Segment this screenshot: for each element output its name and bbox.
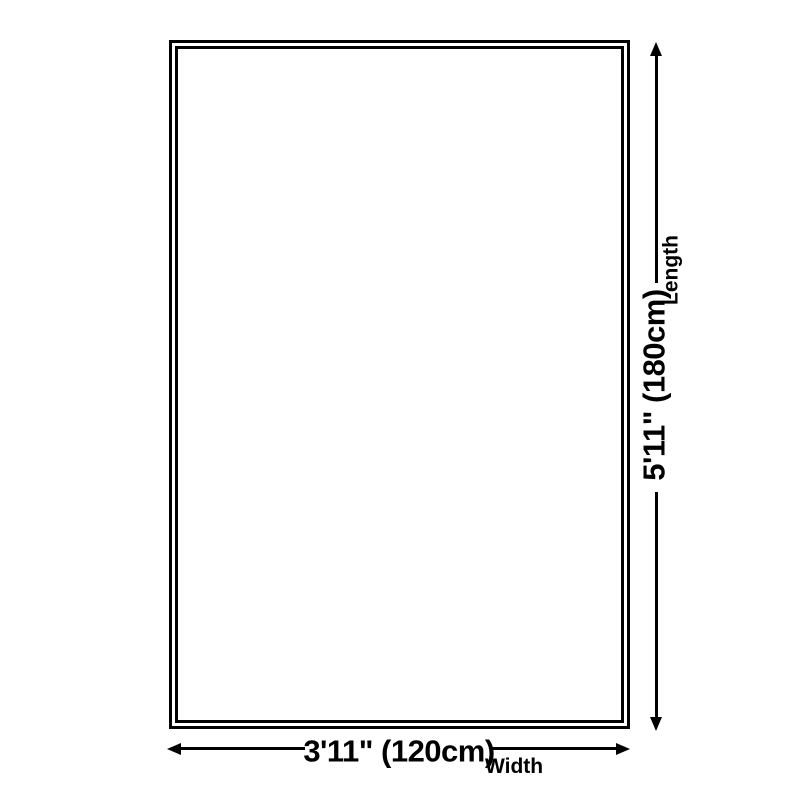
width-dimension-line-right	[490, 747, 617, 750]
dimension-diagram: 5'11" (180cm) Length 3'11" (120cm) Width	[0, 0, 800, 800]
width-dimension-line-left	[180, 747, 305, 750]
product-outline-outer	[169, 40, 630, 729]
arrow-left-icon	[167, 743, 181, 755]
width-value: 3'11" (120cm)	[303, 736, 494, 767]
length-dimension-line-bottom	[655, 492, 658, 719]
length-dimension-line-top	[655, 54, 658, 283]
arrow-down-icon	[650, 717, 662, 731]
arrow-right-icon	[616, 743, 630, 755]
length-value: 5'11" (180cm)	[639, 289, 670, 480]
product-outline-inner	[175, 46, 624, 723]
length-label: Length	[661, 235, 682, 305]
width-label: Width	[485, 756, 543, 777]
